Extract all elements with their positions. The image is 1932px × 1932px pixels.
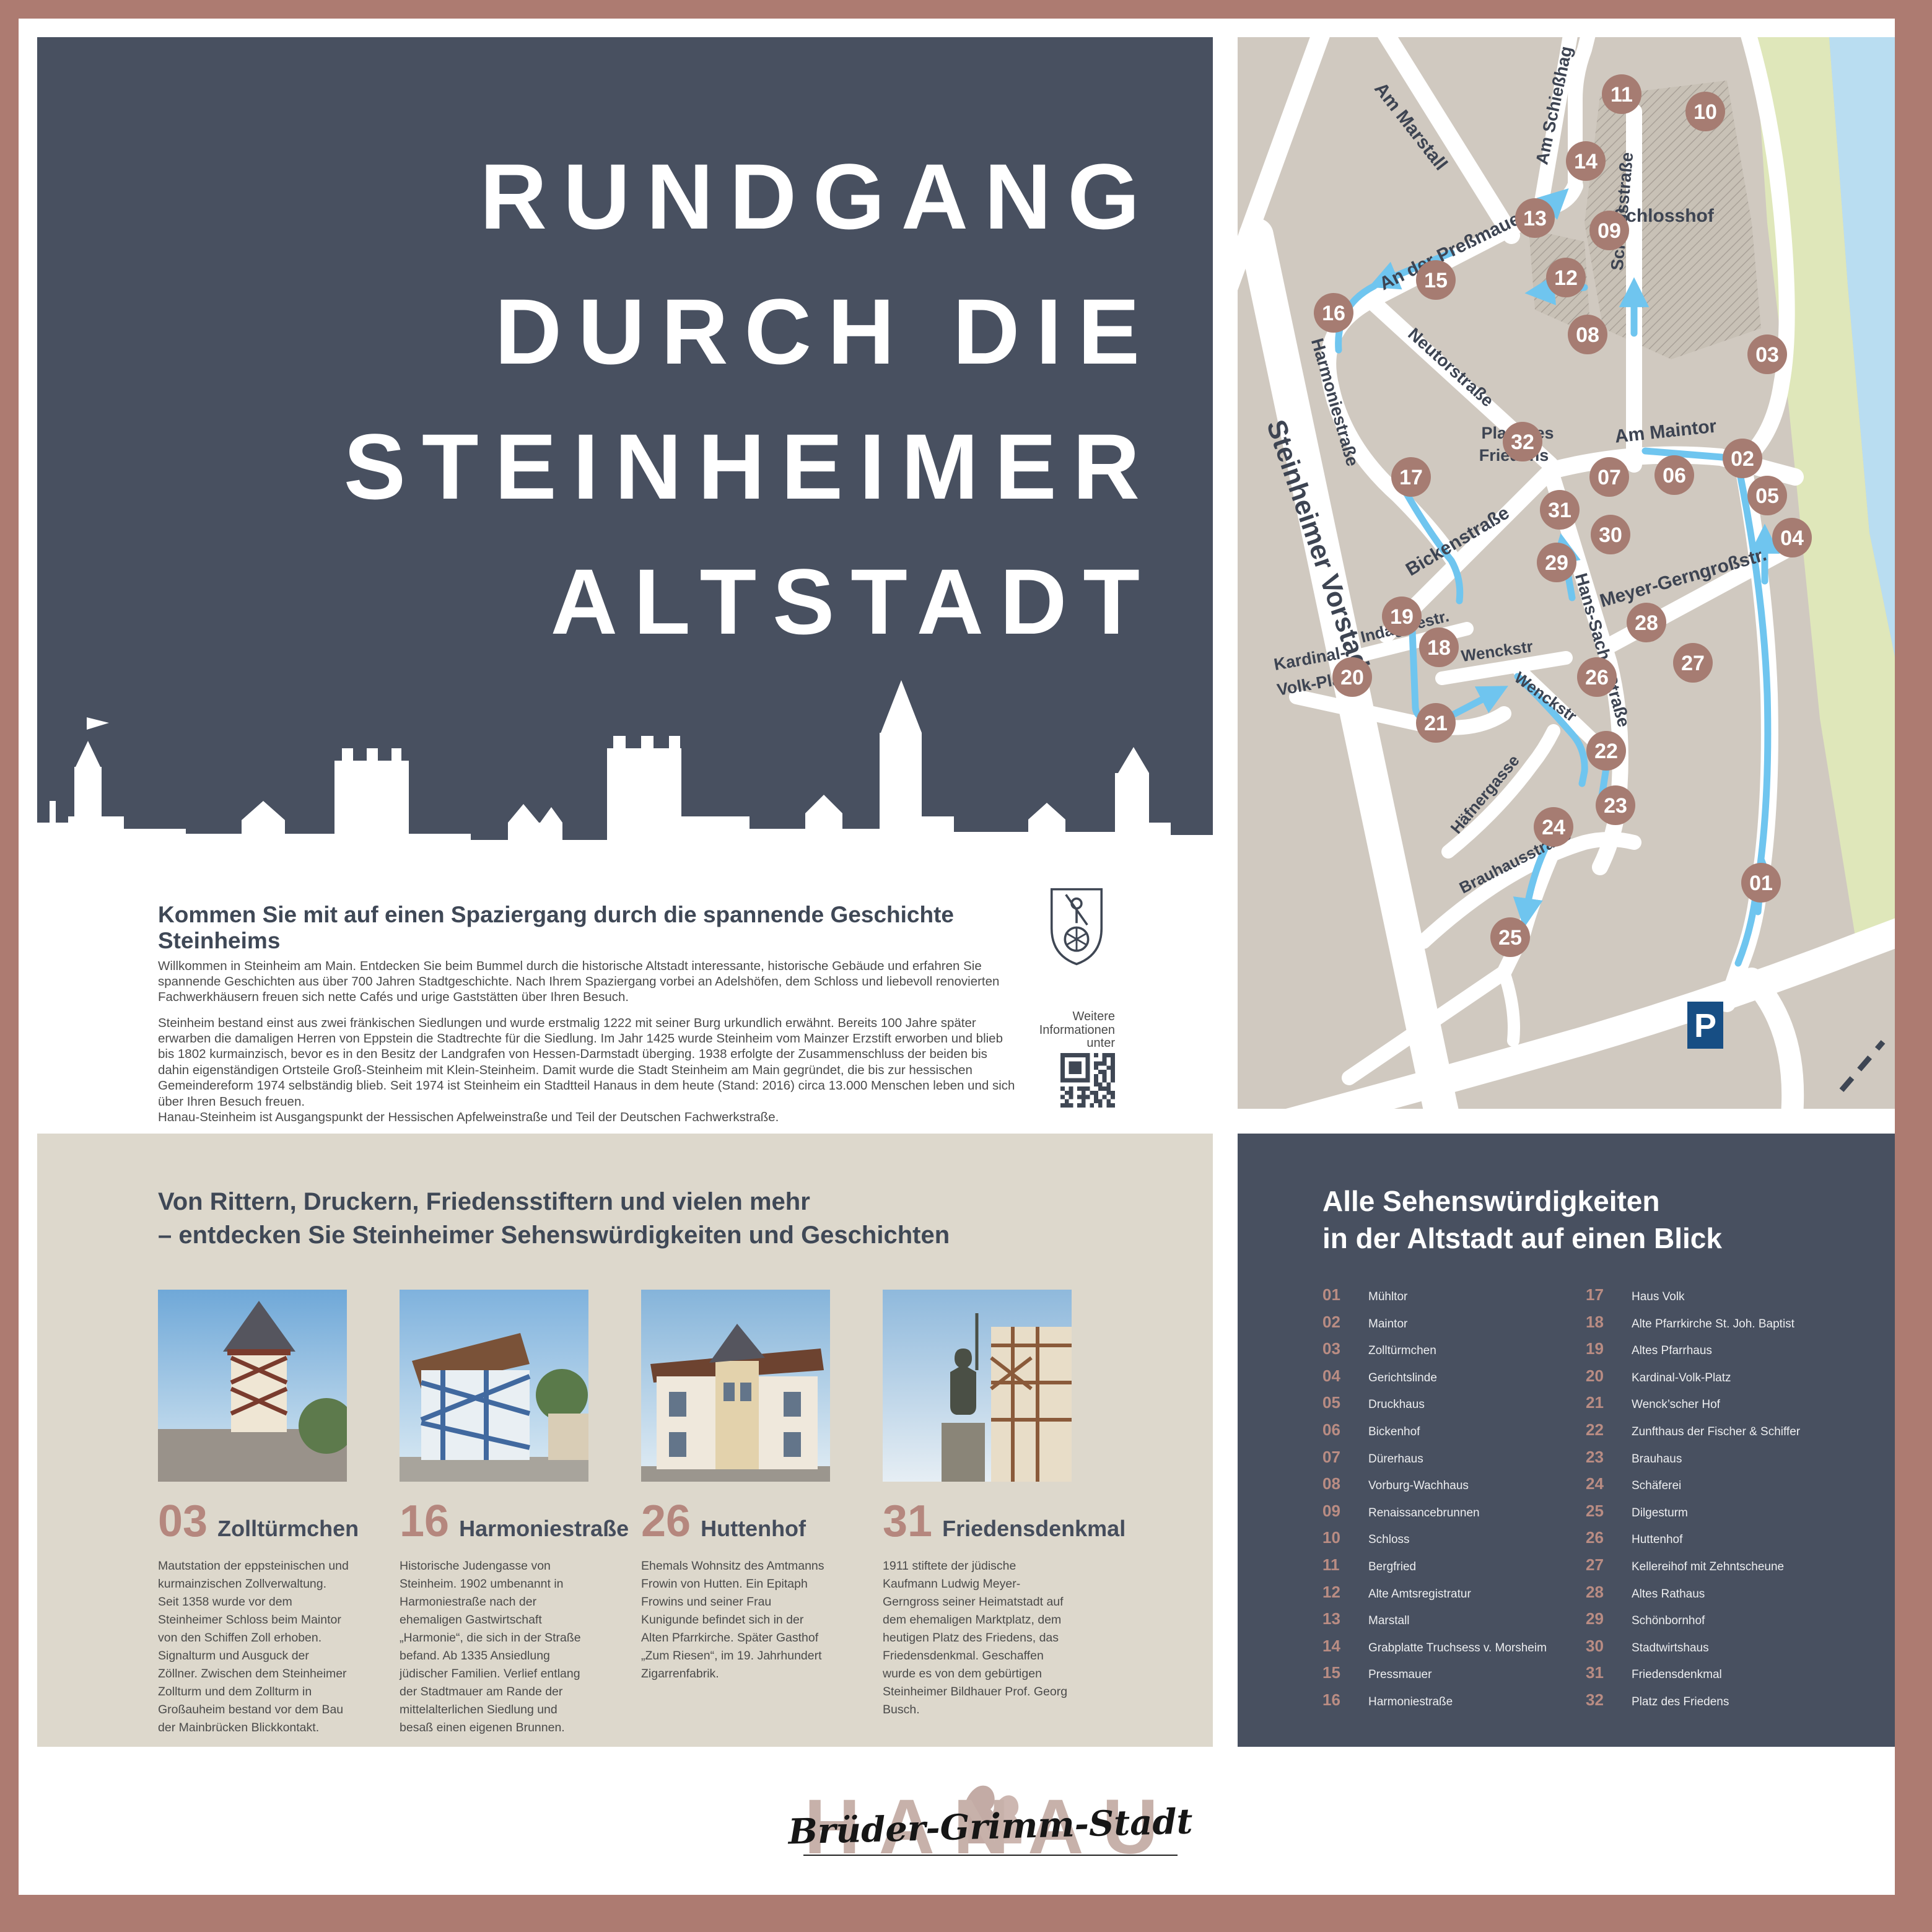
item-label: Alte Amtsregistratur	[1368, 1588, 1471, 1601]
logo-underline	[803, 1855, 1178, 1856]
photo-zolltuermchen	[158, 1290, 347, 1482]
attractions-section: Von Rittern, Druckern, Friedensstiftern …	[37, 1134, 1213, 1747]
attraction-text: 1911 stiftete der jüdische Kaufmann Ludw…	[883, 1557, 1073, 1719]
list-item: 08Vorburg-Wachhaus	[1322, 1474, 1469, 1493]
map-marker-08: 08	[1568, 315, 1607, 354]
item-label: Schloss	[1368, 1533, 1410, 1547]
map-marker-16: 16	[1314, 293, 1353, 333]
svg-text:14: 14	[1574, 150, 1598, 173]
list-item: 20Kardinal-Volk-Platz	[1586, 1366, 1731, 1386]
list-item: 24Schäferei	[1586, 1474, 1681, 1493]
list-item: 04Gerichtslinde	[1322, 1366, 1437, 1386]
item-number: 15	[1322, 1663, 1350, 1682]
map-marker-14: 14	[1566, 141, 1606, 181]
item-label: Wenck’scher Hof	[1632, 1398, 1720, 1412]
item-label: Altes Pfarrhaus	[1632, 1344, 1712, 1358]
item-number: 13	[1322, 1609, 1350, 1628]
item-number: 18	[1586, 1313, 1613, 1332]
caption-number: 16	[400, 1499, 449, 1544]
item-number: 16	[1322, 1690, 1350, 1710]
section-heading: Von Rittern, Druckern, Friedensstiftern …	[158, 1188, 810, 1216]
svg-text:19: 19	[1390, 605, 1414, 629]
map-marker-04: 04	[1772, 518, 1812, 557]
list-item: 26Huttenhof	[1586, 1528, 1682, 1547]
svg-text:02: 02	[1731, 447, 1754, 471]
list-item: 10Schloss	[1322, 1528, 1410, 1547]
qr-code	[1060, 1053, 1115, 1108]
info-note: Weitere Informationen unter	[1013, 1010, 1115, 1051]
list-item: 30Stadtwirtshaus	[1586, 1637, 1709, 1656]
section-heading: – entdecken Sie Steinheimer Sehenswürdig…	[158, 1222, 950, 1249]
svg-text:13: 13	[1523, 207, 1547, 230]
item-number: 11	[1322, 1555, 1350, 1575]
list-item: 06Bickenhof	[1322, 1420, 1420, 1440]
list-item: 27Kellereihof mit Zehntscheune	[1586, 1555, 1784, 1575]
svg-text:15: 15	[1424, 269, 1448, 292]
list-item: 07Dürerhaus	[1322, 1448, 1423, 1467]
svg-text:03: 03	[1755, 343, 1779, 367]
intro-section: Kommen Sie mit auf einen Spaziergang dur…	[37, 860, 1213, 1134]
list-item: 01Mühltor	[1322, 1285, 1407, 1305]
svg-text:26: 26	[1585, 666, 1609, 689]
item-number: 05	[1322, 1393, 1350, 1412]
item-label: Harmoniestraße	[1368, 1695, 1453, 1709]
item-label: Altes Rathaus	[1632, 1588, 1705, 1601]
item-number: 08	[1322, 1474, 1350, 1493]
caption-title: Harmoniestraße	[459, 1516, 629, 1542]
item-number: 14	[1322, 1637, 1350, 1656]
photo-friedensdenkmal	[883, 1290, 1072, 1482]
svg-text:07: 07	[1598, 466, 1621, 489]
map-marker-21: 21	[1416, 703, 1456, 743]
svg-text:09: 09	[1598, 219, 1621, 243]
item-label: Marstall	[1368, 1614, 1410, 1628]
item-label: Pressmauer	[1368, 1668, 1432, 1682]
list-item: 31Friedensdenkmal	[1586, 1663, 1722, 1682]
sights-heading: in der Altstadt auf einen Blick	[1322, 1222, 1722, 1255]
item-label: Zolltürmchen	[1368, 1344, 1436, 1358]
svg-text:22: 22	[1594, 740, 1618, 763]
map-panel: Am MarstallAm SchießhagAn der PreßmauerN…	[1238, 37, 1895, 1109]
title-line: ALTSTADT	[344, 534, 1156, 669]
item-number: 07	[1322, 1448, 1350, 1467]
item-number: 24	[1586, 1474, 1613, 1493]
item-number: 32	[1586, 1690, 1613, 1710]
svg-text:01: 01	[1749, 872, 1773, 895]
svg-text:16: 16	[1322, 302, 1345, 325]
intro-paragraph: Steinheim bestand einst aus zwei fränkis…	[158, 1015, 1019, 1109]
svg-text:12: 12	[1554, 266, 1578, 290]
frame-border-left	[0, 0, 19, 1932]
map-marker-05: 05	[1747, 476, 1787, 515]
svg-text:23: 23	[1604, 794, 1627, 818]
item-label: Schäferei	[1632, 1479, 1681, 1493]
item-label: Zunfthaus der Fischer & Schiffer	[1632, 1425, 1800, 1439]
caption-number: 03	[158, 1499, 208, 1544]
svg-text:29: 29	[1545, 551, 1568, 575]
item-label: Friedensdenkmal	[1632, 1668, 1722, 1682]
svg-text:10: 10	[1694, 100, 1717, 124]
frame-border-top	[0, 0, 1932, 19]
title-panel: RUNDGANG DURCH DIE STEINHEIMER ALTSTADT	[37, 37, 1213, 860]
svg-text:30: 30	[1599, 523, 1622, 547]
list-item: 23Brauhaus	[1586, 1448, 1682, 1467]
photo-harmoniestrasse	[400, 1290, 588, 1482]
item-number: 10	[1322, 1528, 1350, 1547]
svg-text:05: 05	[1755, 484, 1779, 508]
caption-title: Friedensdenkmal	[942, 1516, 1126, 1542]
list-item: 21Wenck’scher Hof	[1586, 1393, 1720, 1412]
map-marker-17: 17	[1391, 457, 1431, 497]
item-number: 09	[1322, 1501, 1350, 1521]
item-label: Haus Volk	[1632, 1290, 1685, 1304]
item-number: 30	[1586, 1637, 1613, 1656]
list-item: 28Altes Rathaus	[1586, 1583, 1705, 1602]
svg-text:11: 11	[1611, 83, 1633, 107]
list-item: 17Haus Volk	[1586, 1285, 1685, 1305]
map-label: Schlosshof	[1614, 206, 1715, 226]
item-number: 28	[1586, 1583, 1613, 1602]
svg-text:32: 32	[1511, 431, 1534, 454]
item-label: Vorburg-Wachhaus	[1368, 1479, 1469, 1493]
parking-label: P	[1694, 1007, 1716, 1044]
map-marker-02: 02	[1723, 439, 1762, 478]
svg-text:25: 25	[1498, 926, 1522, 950]
list-item: 32Platz des Friedens	[1586, 1690, 1729, 1710]
info-board: RUNDGANG DURCH DIE STEINHEIMER ALTSTADT …	[0, 0, 1932, 1932]
map-marker-28: 28	[1627, 603, 1666, 642]
svg-text:17: 17	[1399, 466, 1423, 489]
map-marker-15: 15	[1416, 260, 1456, 300]
caption-number: 26	[641, 1499, 691, 1544]
list-item: 29Schönbornhof	[1586, 1609, 1705, 1628]
city-skyline-silhouette	[37, 674, 1213, 860]
map-marker-07: 07	[1589, 457, 1629, 497]
list-item: 03Zolltürmchen	[1322, 1339, 1436, 1358]
svg-text:27: 27	[1681, 652, 1705, 675]
attraction-text: Ehemals Wohnsitz des Amtmanns Frowin von…	[641, 1557, 832, 1683]
map-marker-22: 22	[1586, 731, 1626, 771]
svg-text:04: 04	[1780, 527, 1804, 550]
map-marker-19: 19	[1382, 597, 1422, 636]
item-number: 29	[1586, 1609, 1613, 1628]
list-item: 13Marstall	[1322, 1609, 1410, 1628]
list-item: 25Dilgesturm	[1586, 1501, 1688, 1521]
item-label: Dürerhaus	[1368, 1453, 1423, 1466]
item-number: 23	[1586, 1448, 1613, 1467]
list-item: 02Maintor	[1322, 1313, 1407, 1332]
map-marker-32: 32	[1503, 422, 1542, 461]
item-label: Dilgesturm	[1632, 1506, 1688, 1520]
frame-border-bottom	[0, 1895, 1932, 1932]
map-marker-11: 11	[1602, 74, 1641, 114]
item-number: 31	[1586, 1663, 1613, 1682]
svg-text:20: 20	[1340, 666, 1364, 689]
attraction-card: 26 Huttenhof Ehemals Wohnsitz des Amtman…	[641, 1290, 833, 1683]
item-label: Grabplatte Truchsess v. Morsheim	[1368, 1641, 1547, 1655]
map-marker-10: 10	[1685, 92, 1725, 131]
svg-text:06: 06	[1663, 464, 1686, 487]
list-item: 18Alte Pfarrkirche St. Joh. Baptist	[1586, 1313, 1794, 1332]
list-item: 16Harmoniestraße	[1322, 1690, 1453, 1710]
parking-icon: P	[1687, 1002, 1723, 1049]
item-number: 02	[1322, 1313, 1350, 1332]
attraction-card: 31 Friedensdenkmal 1911 stiftete der jüd…	[883, 1290, 1075, 1719]
list-item: 22Zunfthaus der Fischer & Schiffer	[1586, 1420, 1800, 1440]
sights-panel: Alle Sehenswürdigkeiten in der Altstadt …	[1238, 1134, 1895, 1747]
item-label: Bickenhof	[1368, 1425, 1420, 1439]
city-map: Am MarstallAm SchießhagAn der PreßmauerN…	[1238, 37, 1895, 1109]
intro-heading: Kommen Sie mit auf einen Spaziergang dur…	[158, 902, 1038, 954]
map-marker-26: 26	[1577, 657, 1617, 697]
item-label: Bergfried	[1368, 1560, 1416, 1574]
map-marker-20: 20	[1332, 657, 1372, 697]
intro-paragraph: Hanau-Steinheim ist Ausgangspunkt der He…	[158, 1109, 1019, 1125]
item-number: 06	[1322, 1420, 1350, 1440]
svg-text:21: 21	[1424, 712, 1448, 735]
list-item: 19Altes Pfarrhaus	[1586, 1339, 1712, 1358]
item-number: 20	[1586, 1366, 1613, 1386]
item-label: Druckhaus	[1368, 1398, 1425, 1412]
item-number: 01	[1322, 1285, 1350, 1305]
item-number: 17	[1586, 1285, 1613, 1305]
attraction-card: 03 Zolltürmchen Mautstation der eppstein…	[158, 1290, 350, 1737]
map-marker-09: 09	[1589, 211, 1629, 250]
svg-text:31: 31	[1548, 499, 1571, 522]
item-label: Maintor	[1368, 1318, 1407, 1331]
list-item: 11Bergfried	[1322, 1555, 1416, 1575]
item-number: 04	[1322, 1366, 1350, 1386]
item-label: Mühltor	[1368, 1290, 1407, 1304]
attraction-text: Historische Judengasse von Steinheim. 19…	[400, 1557, 590, 1737]
caption-number: 31	[883, 1499, 932, 1544]
item-label: Brauhaus	[1632, 1453, 1682, 1466]
map-marker-03: 03	[1747, 334, 1787, 374]
item-label: Alte Pfarrkirche St. Joh. Baptist	[1632, 1318, 1794, 1331]
map-marker-01: 01	[1741, 863, 1781, 903]
item-number: 19	[1586, 1339, 1613, 1358]
item-label: Kardinal-Volk-Platz	[1632, 1371, 1731, 1385]
logo: HANAU Brüder-Grimm-Stadt	[780, 1770, 1201, 1891]
item-label: Huttenhof	[1632, 1533, 1682, 1547]
attraction-card: 16 Harmoniestraße Historische Judengasse…	[400, 1290, 592, 1737]
page-title: RUNDGANG DURCH DIE STEINHEIMER ALTSTADT	[344, 129, 1156, 669]
item-number: 27	[1586, 1555, 1613, 1575]
svg-text:24: 24	[1542, 816, 1565, 839]
list-item: 12Alte Amtsregistratur	[1322, 1583, 1471, 1602]
item-number: 22	[1586, 1420, 1613, 1440]
item-label: Stadtwirtshaus	[1632, 1641, 1709, 1655]
map-marker-06: 06	[1654, 455, 1694, 495]
list-item: 14Grabplatte Truchsess v. Morsheim	[1322, 1637, 1547, 1656]
title-line: DURCH DIE	[344, 264, 1156, 399]
map-marker-31: 31	[1540, 490, 1580, 530]
item-number: 12	[1322, 1583, 1350, 1602]
caption-title: Zolltürmchen	[217, 1516, 359, 1542]
map-marker-25: 25	[1490, 917, 1530, 957]
attraction-text: Mautstation der eppsteinischen und kurma…	[158, 1557, 349, 1737]
item-label: Gerichtslinde	[1368, 1371, 1437, 1385]
intro-paragraph: Willkommen in Steinheim am Main. Entdeck…	[158, 958, 1019, 1005]
coat-of-arms-icon	[1048, 883, 1105, 970]
list-item: 05Druckhaus	[1322, 1393, 1425, 1412]
svg-text:08: 08	[1576, 323, 1599, 347]
svg-text:28: 28	[1635, 611, 1658, 635]
svg-text:18: 18	[1427, 636, 1451, 660]
frame-border-right	[1895, 0, 1932, 1932]
item-label: Platz des Friedens	[1632, 1695, 1729, 1709]
list-item: 15Pressmauer	[1322, 1663, 1432, 1682]
map-marker-23: 23	[1596, 785, 1635, 825]
map-marker-12: 12	[1546, 258, 1586, 297]
map-marker-13: 13	[1515, 198, 1555, 238]
item-label: Renaissancebrunnen	[1368, 1506, 1480, 1520]
caption-title: Huttenhof	[701, 1516, 806, 1542]
title-line: RUNDGANG	[344, 129, 1156, 264]
title-line: STEINHEIMER	[344, 399, 1156, 534]
map-marker-29: 29	[1537, 543, 1576, 582]
item-number: 25	[1586, 1501, 1613, 1521]
item-number: 21	[1586, 1393, 1613, 1412]
item-label: Kellereihof mit Zehntscheune	[1632, 1560, 1784, 1574]
map-marker-18: 18	[1419, 627, 1459, 667]
item-number: 26	[1586, 1528, 1613, 1547]
item-label: Schönbornhof	[1632, 1614, 1705, 1628]
map-marker-27: 27	[1673, 643, 1713, 683]
list-item: 09Renaissancebrunnen	[1322, 1501, 1480, 1521]
sights-heading: Alle Sehenswürdigkeiten	[1322, 1184, 1659, 1218]
map-marker-30: 30	[1591, 515, 1630, 554]
photo-huttenhof	[641, 1290, 830, 1482]
map-marker-24: 24	[1534, 807, 1573, 847]
item-number: 03	[1322, 1339, 1350, 1358]
